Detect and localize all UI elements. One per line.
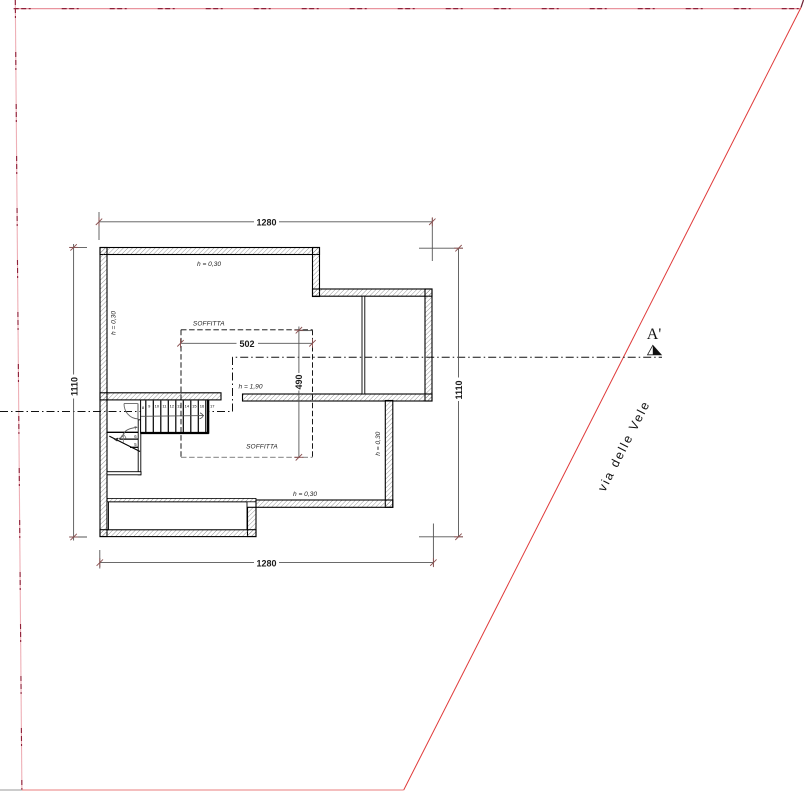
svg-text:16: 16	[200, 404, 205, 409]
svg-text:502: 502	[239, 339, 254, 349]
svg-text:10: 10	[155, 404, 160, 409]
svg-text:A': A'	[647, 326, 662, 343]
svg-text:1110: 1110	[454, 380, 464, 399]
svg-text:h = 0,30: h = 0,30	[111, 311, 118, 335]
svg-text:15: 15	[192, 404, 197, 409]
svg-text:h = 0,30: h = 0,30	[375, 431, 382, 455]
svg-text:490: 490	[294, 374, 304, 389]
svg-text:1280: 1280	[256, 218, 276, 228]
svg-text:17: 17	[210, 404, 215, 409]
svg-text:14: 14	[185, 404, 190, 409]
svg-text:1110: 1110	[69, 377, 79, 396]
svg-text:h = 1,90: h = 1,90	[238, 384, 262, 391]
svg-text:12: 12	[170, 404, 175, 409]
svg-text:SOFFITTA: SOFFITTA	[246, 443, 278, 450]
svg-text:SOFFITTA: SOFFITTA	[193, 320, 225, 327]
svg-text:h = 0,30: h = 0,30	[197, 261, 221, 268]
svg-text:13: 13	[177, 404, 182, 409]
svg-text:h = 0,30: h = 0,30	[293, 491, 317, 498]
svg-text:1280: 1280	[256, 558, 276, 568]
